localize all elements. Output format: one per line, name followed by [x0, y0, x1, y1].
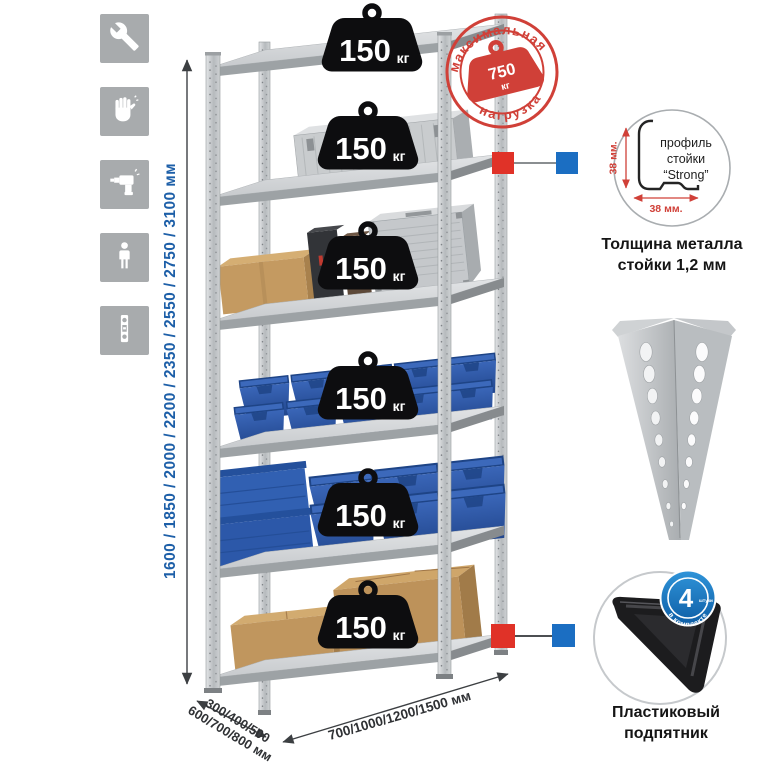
foot-caption-line2: подпятник — [560, 723, 765, 744]
load-badge-unit: кг — [393, 268, 406, 284]
rack-post-front-right — [436, 32, 453, 679]
profile-caption-line2: стойки 1,2 мм — [562, 255, 765, 276]
included-count-value: 4 — [679, 583, 694, 613]
height-dimension-label: 1600 / 1850 / 2000 / 2200 / 2350 / 2550 … — [162, 51, 180, 691]
load-badge-value: 150 — [335, 498, 387, 533]
angle-post-image — [612, 318, 736, 540]
gloves-icon — [109, 94, 140, 130]
callout-marker-blue-bottom — [552, 624, 575, 647]
level-icon — [109, 313, 140, 349]
wrench-icon — [109, 21, 140, 57]
assembly-step-wrench — [100, 14, 149, 63]
callout-marker-red-top — [492, 152, 514, 174]
load-badge-unit: кг — [393, 627, 406, 643]
load-badge-shelf-1: 150 кг — [312, 2, 432, 80]
load-badge-value: 150 — [335, 610, 387, 645]
profile-caption: Толщина металла стойки 1,2 мм — [562, 234, 765, 276]
rack-post-front-left — [204, 52, 222, 693]
profile-detail-circle: 38 мм. 38 мм. профиль стойки “Strong” — [608, 110, 731, 226]
foot-caption: Пластиковый подпятник — [560, 702, 765, 744]
load-badge-shelf-4: 150 кг — [308, 350, 428, 428]
assembly-step-person — [100, 233, 149, 282]
load-badge-value: 150 — [335, 131, 387, 166]
load-badge-unit: кг — [393, 515, 406, 531]
profile-caption-line1: Толщина металла — [562, 234, 765, 255]
shelving-infographic: максимальная нагрузка 750 кг 38 мм. 38 м… — [0, 0, 765, 765]
load-badge-value: 150 — [339, 33, 391, 68]
load-badge-shelf-6: 150 кг — [308, 579, 428, 657]
foot-caption-line1: Пластиковый — [560, 702, 765, 723]
person-icon — [109, 240, 140, 276]
profile-dim-horizontal: 38 мм. — [649, 203, 682, 215]
load-badge-shelf-5: 150 кг — [308, 467, 428, 545]
load-badge-shelf-3: 150 кг — [308, 220, 428, 298]
load-badge-shelf-2: 150 кг — [308, 100, 428, 178]
profile-label-2: стойки — [667, 152, 705, 166]
assembly-step-gloves — [100, 87, 149, 136]
load-badge-unit: кг — [397, 50, 410, 66]
profile-label-3: “Strong” — [663, 168, 708, 182]
load-badge-unit: кг — [393, 148, 406, 164]
assembly-step-drill — [100, 160, 149, 209]
profile-dim-vertical: 38 мм. — [608, 141, 620, 174]
drill-icon — [109, 167, 140, 203]
load-badge-value: 150 — [335, 251, 387, 286]
assembly-step-level — [100, 306, 149, 355]
load-badge-unit: кг — [393, 398, 406, 414]
callout-marker-blue-top — [556, 152, 578, 174]
load-badge-value: 150 — [335, 381, 387, 416]
callout-marker-red-bottom — [491, 624, 515, 648]
included-count-small-label: штуки — [699, 598, 713, 603]
profile-label-1: профиль — [660, 136, 712, 150]
